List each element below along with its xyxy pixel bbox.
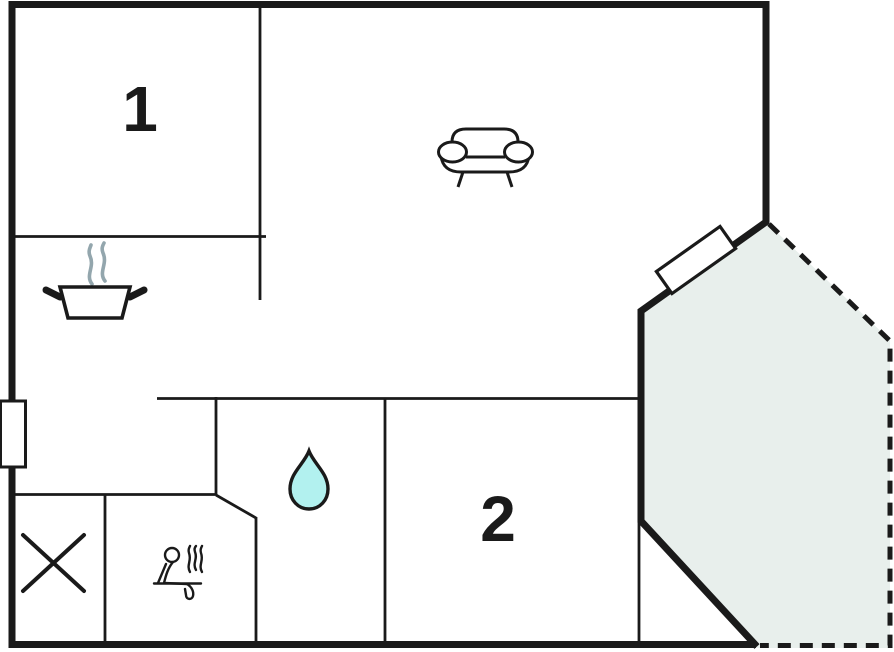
cross-icon <box>23 535 84 591</box>
cooking-pot-icon <box>46 243 144 318</box>
wall-sauna-bevel <box>216 495 256 518</box>
sofa-icon <box>439 129 533 187</box>
sauna-person-icon <box>154 546 202 599</box>
steam-icon <box>89 243 105 284</box>
window-icon <box>1 401 26 467</box>
room-2-label: 2 <box>466 484 530 554</box>
water-drop-icon <box>290 451 328 509</box>
room-1-label: 1 <box>108 74 172 144</box>
floor-plan: 1 2 <box>0 0 894 652</box>
interior-walls <box>12 5 641 645</box>
